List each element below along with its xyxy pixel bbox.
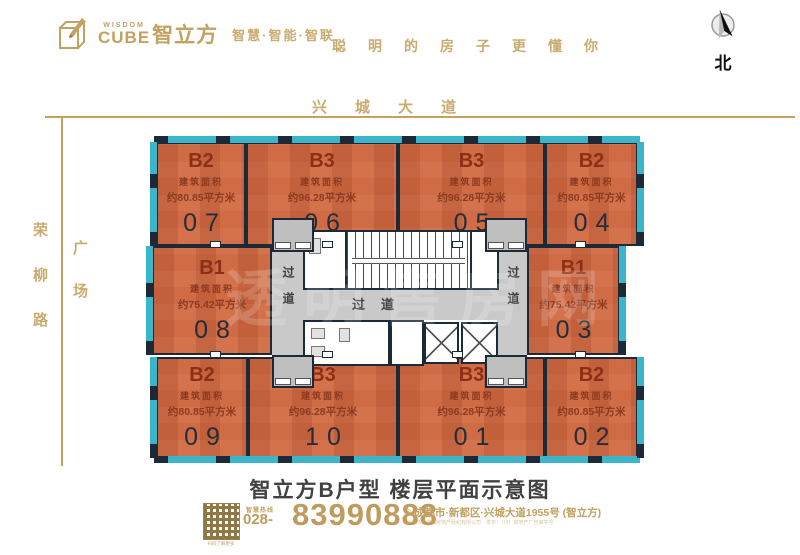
unit-area-label: 建筑面积	[179, 175, 223, 188]
address-row: ◎ 成都市·新都区·兴城大道1955号 (智立方)	[404, 505, 601, 520]
unit-area-value: 约80.85平方米	[168, 404, 236, 419]
address-text: 成都市·新都区·兴城大道1955号 (智立方)	[414, 505, 601, 520]
curtainwall-right-bottom	[637, 357, 644, 458]
unit-type: B2	[579, 150, 605, 172]
compass-north-icon	[701, 8, 745, 46]
plaza-label: 广场	[69, 240, 90, 326]
vestibule-top-left	[272, 218, 314, 252]
door-opening	[452, 351, 463, 358]
unit-area-label: 建筑面积	[190, 282, 234, 295]
unit-area-value: 约96.28平方米	[289, 404, 357, 419]
unit-02: B2 建筑面积 约80.85平方米 02	[545, 357, 638, 458]
door-opening	[322, 241, 333, 248]
door-opening	[575, 241, 586, 248]
door-opening	[210, 351, 221, 358]
fine-print: 代理商：成都房地产经纪有限公司 发布：（川）房地产广告审字号	[406, 519, 554, 526]
corridor-label-horizontal: 过道	[352, 294, 410, 313]
vestibule-bottom-right	[485, 355, 527, 388]
vestibule-bottom-left	[272, 355, 314, 388]
unit-07: B2 建筑面积 约80.85平方米 07	[156, 142, 246, 246]
phone-prefix: 028-	[243, 511, 273, 528]
unit-08: B1 建筑面积 约75.42平方米 08	[152, 246, 272, 355]
unit-number: 02	[574, 423, 618, 452]
unit-03: B1 建筑面积 约75.42平方米 03	[527, 246, 620, 355]
door-opening	[452, 241, 463, 248]
compass-north-label: 北	[701, 49, 745, 74]
door-opening	[322, 351, 333, 358]
unit-number: 07	[183, 209, 227, 238]
utility-room	[390, 320, 424, 366]
slogan: 聪明的房子更懂你	[332, 36, 620, 56]
curtainwall-top	[154, 136, 640, 143]
unit-type: B2	[189, 364, 215, 386]
road-line-horizontal	[45, 116, 795, 118]
unit-area-label: 建筑面积	[301, 389, 345, 402]
road-label-xingcheng-avenue: 兴城大道	[312, 96, 484, 117]
qr-caption: 扫码了解更多	[198, 541, 244, 547]
unit-number: 03	[556, 316, 600, 345]
logo-cube-icon	[52, 14, 92, 54]
unit-type: B3	[309, 150, 335, 172]
unit-area-value: 约96.28平方米	[288, 190, 356, 205]
unit-area-value: 约80.85平方米	[167, 190, 235, 205]
stairwell	[345, 230, 472, 290]
curtainwall-bottom	[154, 456, 640, 463]
unit-number: 08	[194, 316, 238, 345]
curtainwall-right-top	[637, 142, 644, 246]
unit-type: B1	[561, 257, 587, 279]
restroom	[303, 320, 390, 366]
unit-area-label: 建筑面积	[180, 389, 224, 402]
corridor-label-left: 过道	[280, 266, 297, 318]
logo-cube: CUBE	[98, 29, 150, 46]
unit-area-label: 建筑面积	[300, 175, 344, 188]
door-opening	[575, 351, 586, 358]
curtainwall-right-mid	[619, 246, 626, 355]
unit-number: 09	[184, 423, 228, 452]
road-line-vertical	[61, 116, 63, 466]
vestibule-top-right	[485, 218, 527, 252]
unit-area-value: 约80.85平方米	[557, 404, 625, 419]
door-opening	[210, 241, 221, 248]
unit-type: B2	[579, 364, 605, 386]
qr-code	[203, 503, 240, 540]
unit-area-label: 建筑面积	[449, 389, 493, 402]
curtainwall-left-top	[150, 142, 157, 246]
unit-number: 01	[454, 423, 498, 452]
unit-area-label: 建筑面积	[569, 389, 613, 402]
logo-en-text: WISDOM CUBE	[98, 22, 150, 46]
road-label-rongliu-road: 荣柳路	[29, 222, 50, 357]
unit-area-value: 约80.85平方米	[557, 190, 625, 205]
stair-landing	[352, 258, 465, 264]
unit-type: B3	[459, 364, 485, 386]
unit-area-label: 建筑面积	[449, 175, 493, 188]
unit-number: 10	[305, 423, 349, 452]
unit-04: B2 建筑面积 约80.85平方米 04	[545, 142, 638, 246]
unit-type: B2	[188, 150, 214, 172]
unit-type: B1	[199, 257, 225, 279]
location-pin-icon: ◎	[404, 507, 412, 518]
corridor-label-right: 过道	[505, 266, 522, 318]
brand-tagline: 智慧·智能·智联	[232, 25, 335, 44]
unit-area-value: 约75.42平方米	[539, 297, 607, 312]
curtainwall-left-mid	[146, 246, 153, 355]
unit-10: B3 建筑面积 约96.28平方米 10	[248, 357, 398, 458]
curtainwall-left-bottom	[150, 357, 157, 458]
unit-area-value: 约96.28平方米	[437, 190, 505, 205]
unit-09: B2 建筑面积 约80.85平方米 09	[156, 357, 248, 458]
unit-area-value: 约75.42平方米	[178, 297, 246, 312]
unit-area-value: 约96.28平方米	[437, 404, 505, 419]
logo-brand-cn: 智立方	[152, 19, 218, 49]
unit-area-label: 建筑面积	[551, 282, 595, 295]
unit-type: B3	[459, 150, 485, 172]
brand-logo: WISDOM CUBE 智立方 智慧·智能·智联	[52, 14, 335, 54]
unit-type: B3	[310, 364, 336, 386]
flyer-page: WISDOM CUBE 智立方 智慧·智能·智联 聪明的房子更懂你 北 兴城大道…	[0, 0, 800, 555]
unit-area-label: 建筑面积	[569, 175, 613, 188]
unit-number: 04	[574, 209, 618, 238]
north-compass: 北	[701, 8, 745, 74]
